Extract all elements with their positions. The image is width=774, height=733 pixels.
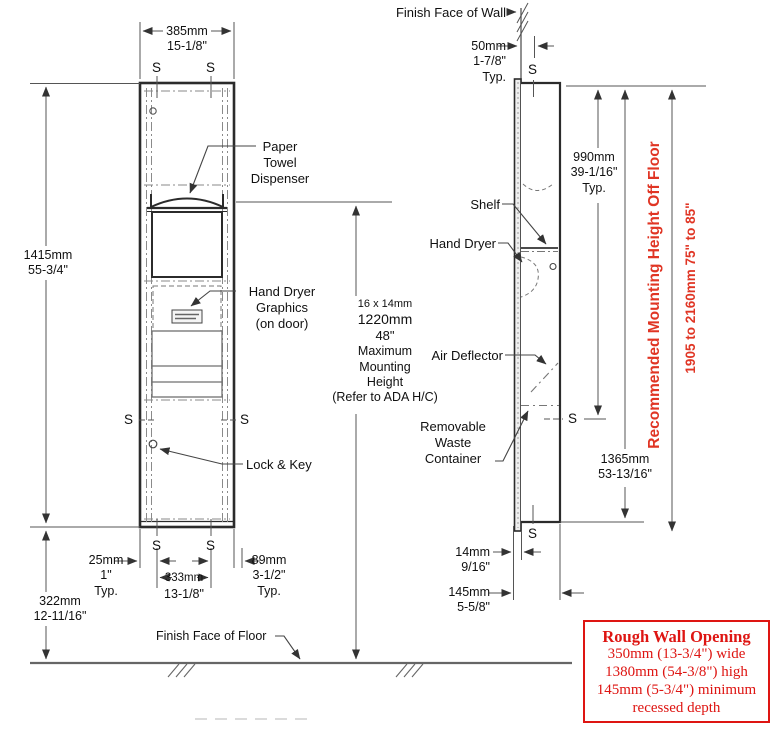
finish-wall-label: Finish Face of Wall	[366, 5, 506, 21]
front-floor-dim: 322mm 12-11/16"	[8, 594, 112, 625]
side-flange-dim: 14mm 9/16"	[444, 545, 490, 576]
rough-wall-opening-box: Rough Wall Opening 350mm (13-3/4") wide …	[583, 620, 770, 723]
front-stud-dim-in: 13-1/8"	[154, 587, 214, 602]
side-unit-outline	[515, 79, 561, 531]
front-unit-details	[144, 88, 230, 522]
side-height-dim: 1365mm 53-13/16"	[590, 452, 660, 483]
stud-marker: S	[124, 412, 133, 427]
front-width-mm: 385mm	[160, 24, 214, 39]
recommended-height-title: Recommended Mounting Height Off Floor	[645, 135, 665, 455]
side-upper-dim: 990mm 39-1/16" Typ.	[561, 150, 627, 196]
hand-dryer-graphics-plate	[172, 310, 202, 323]
front-height-in: 55-3/4"	[12, 263, 84, 278]
rough-opening-title: Rough Wall Opening	[585, 627, 768, 646]
stud-marker: S	[528, 526, 537, 541]
screw-icon	[150, 108, 156, 114]
waste-container-label: Removable Waste Container	[412, 419, 494, 467]
shelf-label: Shelf	[452, 197, 500, 213]
front-side-off-dim: 89mm 3-1/2" Typ.	[243, 553, 295, 599]
spec-drawing-canvas: 385mm 15-1/8" S S S S S S 1415mm 55-3/4"…	[0, 0, 774, 733]
lock-icon	[149, 440, 157, 448]
side-depth-dim: 145mm 5-5/8"	[442, 585, 490, 616]
recommended-height-range: 1905 to 2160mm 75" to 85"	[681, 183, 701, 393]
stud-marker: S	[528, 62, 537, 77]
stud-marker: S	[206, 538, 215, 553]
stud-marker: S	[240, 412, 249, 427]
air-deflector-label: Air Deflector	[414, 348, 503, 364]
paper-towel-label: Paper Towel Dispenser	[240, 139, 320, 187]
front-stud-dim-mm: 333mm	[159, 571, 209, 585]
front-unit-outline	[140, 83, 234, 527]
stud-marker: S	[152, 60, 161, 75]
front-height-mm: 1415mm	[12, 248, 84, 263]
stud-marker: S	[568, 411, 577, 426]
side-wall-inset-dim: 50mm 1-7/8" Typ.	[448, 39, 506, 85]
front-width-in: 15-1/8"	[160, 39, 214, 54]
hand-dryer-graphics-label: Hand Dryer Graphics (on door)	[238, 284, 326, 332]
front-inset-dim: 25mm 1" Typ.	[77, 553, 135, 599]
floor-line	[30, 663, 572, 719]
finish-floor-label: Finish Face of Floor	[156, 629, 266, 644]
stud-marker: S	[206, 60, 215, 75]
lock-key-label: Lock & Key	[246, 457, 312, 473]
side-hand-dryer-label: Hand Dryer	[416, 236, 496, 252]
stud-marker: S	[152, 538, 161, 553]
